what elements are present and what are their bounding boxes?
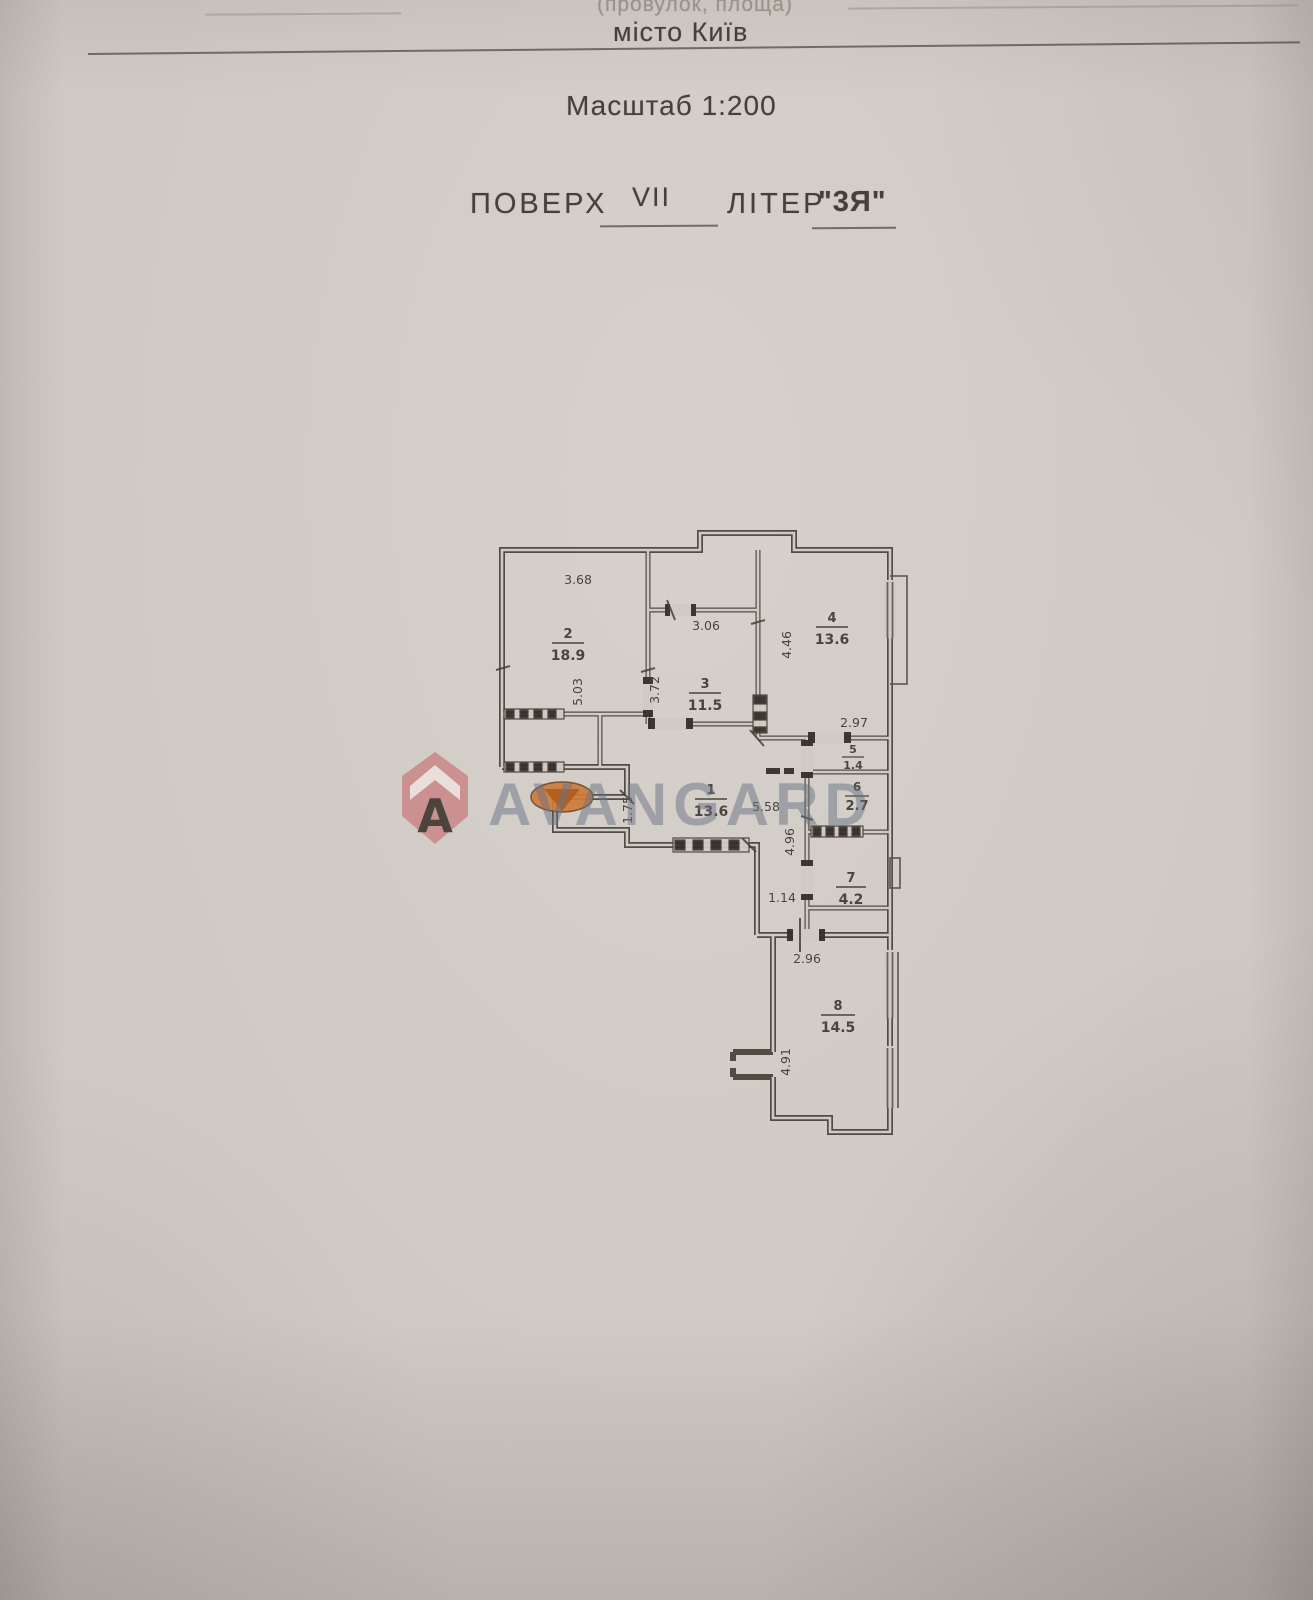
room2-number: 2 bbox=[563, 627, 572, 642]
letter-label: ЛІТЕР bbox=[727, 188, 826, 221]
room7-number: 7 bbox=[846, 871, 855, 886]
letter-underline bbox=[812, 227, 896, 230]
room7-area: 4.2 bbox=[839, 892, 864, 908]
room2-area: 18.9 bbox=[551, 648, 586, 664]
floor-plan-drawing: 3.68 5.03 3.06 3.72 4.46 2.97 1.75 5.58 … bbox=[460, 520, 910, 1170]
dim-room4-depth: 4.46 bbox=[779, 631, 794, 659]
dim-room4-width: 2.97 bbox=[840, 715, 868, 730]
header: (провулок, площа) місто Київ Масштаб 1:2… bbox=[0, 0, 1313, 260]
dim-room3-width: 3.06 bbox=[692, 618, 720, 633]
dim-room2-width: 3.68 bbox=[564, 572, 592, 587]
city-line: місто Київ bbox=[613, 17, 748, 48]
address-fragment: (провулок, площа) bbox=[597, 0, 793, 17]
floor-underline bbox=[600, 225, 718, 228]
dim-room8-width: 2.96 bbox=[793, 951, 821, 966]
scale-line: Масштаб 1:200 bbox=[566, 90, 777, 122]
address-underline-right bbox=[848, 4, 1298, 9]
letter-value: "3Я" bbox=[818, 186, 886, 219]
logo-letter: A bbox=[417, 789, 453, 843]
floor-value: VII bbox=[632, 182, 671, 213]
room5-number: 5 bbox=[849, 743, 857, 756]
address-underline-left bbox=[205, 12, 401, 15]
room4-area: 13.6 bbox=[815, 632, 850, 648]
dim-room3-depth: 3.72 bbox=[647, 676, 662, 704]
scanned-floor-plan-document: { "document": { "header": { "address_fra… bbox=[0, 0, 1313, 1600]
room8-number: 8 bbox=[833, 999, 842, 1014]
room3-number: 3 bbox=[700, 677, 709, 692]
avangard-logo-icon: A bbox=[402, 752, 468, 844]
watermark-brand-text: AVANGARD bbox=[488, 770, 874, 839]
room3-area: 11.5 bbox=[688, 698, 723, 714]
dim-room8-depth: 4.91 bbox=[778, 1048, 793, 1076]
dim-room2-depth: 5.03 bbox=[570, 678, 585, 706]
room4-number: 4 bbox=[827, 611, 836, 626]
dim-vestibule-width: 1.14 bbox=[768, 890, 796, 905]
floor-label: ПОВЕРХ bbox=[470, 188, 607, 221]
room8-area: 14.5 bbox=[821, 1020, 856, 1036]
